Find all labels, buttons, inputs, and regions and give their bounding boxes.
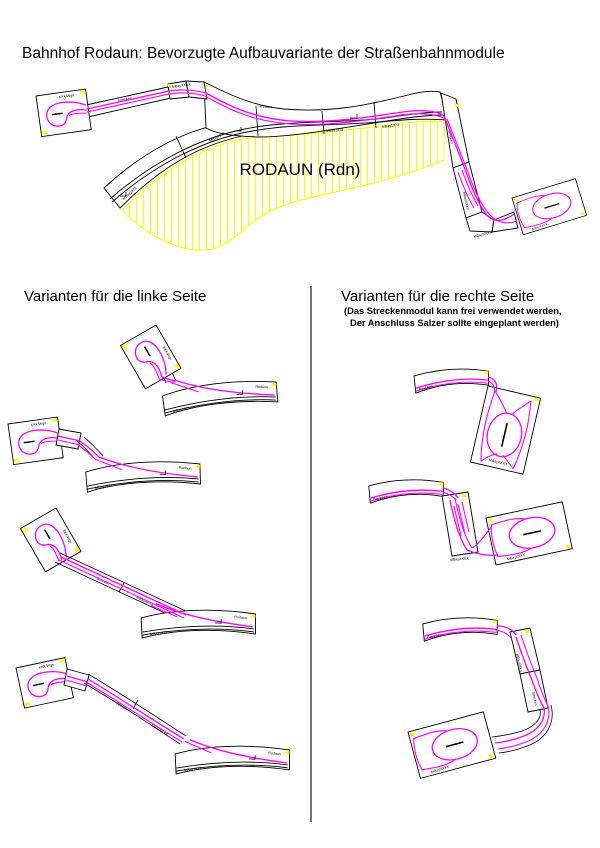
- left-variant-1: [120, 325, 278, 416]
- right-variant-2: MBayXXXX: [367, 475, 572, 565]
- left-variant-4: Strecken MBayXXXX: [16, 658, 291, 780]
- turnout-module: [140, 603, 257, 644]
- loop-module: [120, 325, 181, 389]
- turnout-module: [174, 739, 291, 780]
- track-modules: MBayXXXX Strecken: [510, 628, 548, 712]
- right-section-note-2: Der Anschluss Salzer sollte eingeplant w…: [350, 318, 559, 328]
- loop-module-right: [512, 179, 587, 235]
- loop-module: [486, 502, 572, 565]
- tram-track: [59, 557, 186, 618]
- right-variant-1: [413, 365, 541, 474]
- left-variant-3: Strecken MBayXXXX: [20, 508, 256, 644]
- feeder-band-module: Strecken: [86, 87, 171, 117]
- page-title: Bahnhof Rodaun: Bevorzugte Aufbauvariant…: [22, 45, 505, 62]
- loop-module: [408, 712, 496, 779]
- loop-module: [470, 386, 540, 474]
- right-section-header: Varianten für die rechte Seite: [341, 288, 534, 305]
- svg-text:MBayXXXX: MBayXXXX: [150, 723, 169, 736]
- street-module: [367, 475, 444, 509]
- page: XXX/Wgn Rodaun MBay1973 Bay1973: [0, 0, 600, 848]
- street-module: [421, 613, 498, 647]
- street-module: [413, 365, 490, 398]
- turnout-module: [162, 377, 278, 416]
- descent-band-modules: Strecken MBayXXXX MBayXXXX: [441, 93, 518, 239]
- station-label: RODAUN (Rdn): [240, 160, 361, 179]
- turnout-module: [85, 457, 201, 494]
- loop-module: [8, 417, 63, 465]
- diagram-canvas: XXX/Wgn Rodaun MBay1973 Bay1973: [0, 0, 600, 848]
- main-diagram: MBay1973 MBay1973 Strecken MBay1973 MBay…: [36, 81, 587, 250]
- left-section-header: Varianten für die linke Seite: [24, 288, 206, 305]
- station-hatch-area: [122, 121, 444, 250]
- left-variant-2: [8, 417, 201, 494]
- right-section-note-1: (Das Streckenmodul kann frei verwendet w…: [344, 306, 562, 316]
- right-variant-3: MBayXXXX Strecken: [408, 613, 552, 778]
- svg-text:MBayXXXX: MBayXXXX: [450, 556, 470, 562]
- loop-module-left: [36, 89, 91, 137]
